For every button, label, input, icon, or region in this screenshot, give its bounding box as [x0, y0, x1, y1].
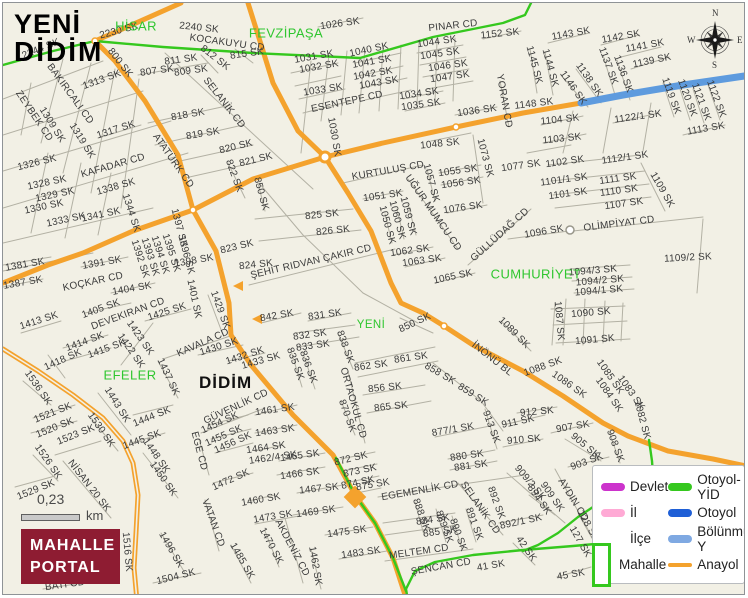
neighborhood-label: YENİ — [357, 319, 385, 331]
legend-item-otoyol-yi-d: Otoyol-YİD — [668, 474, 745, 499]
legend-label: Otoyol-YİD — [697, 472, 745, 502]
legend-label: Bölünmüş Y — [697, 524, 745, 554]
legend-item-i-l-e: İlçe — [601, 526, 668, 551]
legend-item-b-l-nm-y: Bölünmüş Y — [668, 526, 745, 551]
legend-swatch — [592, 543, 611, 587]
legend-label: Devlet — [630, 479, 668, 494]
logo-line1: MAHALLE — [30, 535, 120, 557]
compass-n: N — [712, 8, 719, 18]
city-label: DİDİM — [199, 373, 252, 393]
legend-item-devlet: Devlet — [601, 474, 668, 499]
map-screenshot: { "title": {"line1": "YENİ", "line2": "D… — [0, 0, 748, 598]
legend-swatch — [668, 563, 692, 567]
compass-e: E — [737, 35, 743, 45]
legend-swatch — [601, 535, 625, 543]
district-title-line1: YENİ — [14, 11, 103, 38]
scale-unit: km — [86, 508, 103, 523]
legend-item-mahalle: Mahalle — [601, 552, 668, 577]
map-legend: DevletİlİlçeMahalle Otoyol-YİDOtoyolBölü… — [592, 465, 745, 584]
neighborhood-label: CUMHURİYET — [491, 267, 582, 282]
legend-column-right: Otoyol-YİDOtoyolBölünmüş YAnayol — [668, 474, 745, 577]
scale-bar: 0,23 km — [21, 491, 103, 525]
legend-item-anayol: Anayol — [668, 552, 745, 577]
legend-swatch — [668, 483, 692, 491]
mahalle-portal-logo: MAHALLE PORTAL — [21, 529, 120, 584]
legend-swatch — [668, 535, 692, 543]
legend-item-otoyol: Otoyol — [668, 500, 745, 525]
scale-value: 0,23 — [37, 491, 103, 507]
legend-label: Mahalle — [619, 557, 666, 572]
district-title-line2: DİDİM — [14, 38, 103, 66]
legend-label: Otoyol — [697, 505, 736, 520]
neighborhood-label: EFELER — [104, 368, 157, 383]
map-canvas[interactable]: 2230 SK2240 SKKOCAKUYU CD2244 SK800 SK81… — [2, 2, 745, 595]
legend-label: İl — [630, 505, 637, 520]
legend-column-left: DevletİlİlçeMahalle — [601, 474, 668, 577]
district-title: YENİ DİDİM — [14, 11, 103, 66]
legend-label: İlçe — [630, 531, 651, 546]
neighborhood-label: HİSAR — [115, 19, 157, 34]
compass-rose-icon: N E S W — [687, 11, 743, 69]
compass-s: S — [712, 60, 717, 70]
legend-swatch — [601, 483, 625, 491]
legend-item-i-l: İl — [601, 500, 668, 525]
legend-swatch — [601, 509, 625, 517]
legend-label: Anayol — [697, 557, 738, 572]
scale-bar-graphic — [21, 514, 80, 521]
legend-swatch — [668, 509, 692, 517]
compass-w: W — [687, 35, 696, 45]
neighborhood-label: FEVZİPAŞA — [249, 26, 323, 41]
logo-line2: PORTAL — [30, 557, 120, 579]
